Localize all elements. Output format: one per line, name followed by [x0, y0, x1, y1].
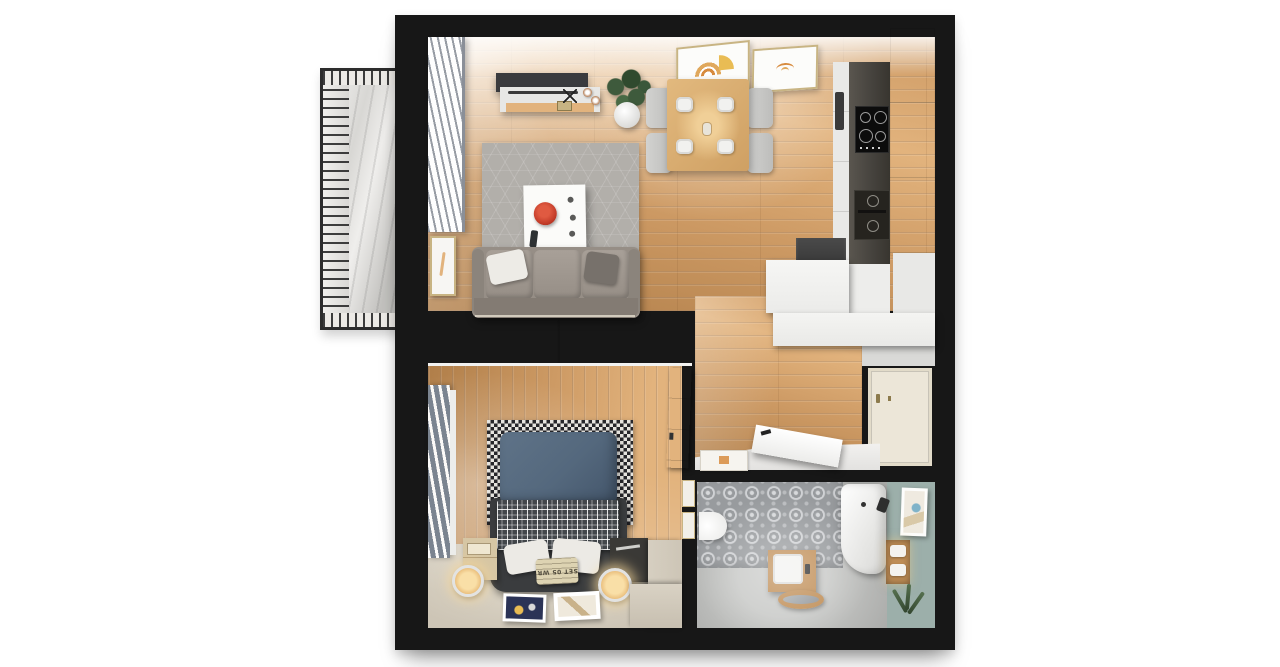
small-frame — [682, 480, 695, 507]
hall-cabinet-upper — [766, 260, 849, 313]
plate — [676, 97, 693, 112]
wash-basin — [773, 554, 803, 584]
toilet — [699, 512, 727, 540]
balcony-railing-left — [323, 71, 349, 327]
towel-roll — [890, 545, 906, 557]
bedroom-wardrobe — [428, 320, 692, 366]
tub-drain — [861, 502, 866, 507]
sofa — [472, 247, 640, 318]
kitchen-corner-cabinet — [893, 253, 935, 315]
sofa-cushion — [534, 250, 581, 299]
cushion-print-text: SET 05 WR — [536, 566, 577, 575]
floor-poster-beige — [553, 591, 600, 621]
hall-cabinet-lower — [773, 313, 935, 346]
bedroom-radiator — [450, 390, 456, 555]
eyeglasses — [616, 544, 640, 550]
bathroom-wall-picture — [900, 488, 928, 537]
poster-art — [506, 596, 544, 619]
towel-shelf — [886, 540, 910, 584]
picture-sketch — [439, 252, 445, 276]
door-handle — [669, 433, 673, 440]
balcony-concrete-floor — [345, 83, 395, 315]
book-stack — [468, 544, 490, 554]
poster-art — [558, 595, 597, 617]
red-fruit-bowl — [534, 202, 557, 225]
kitchen-tall-cabinets — [890, 28, 935, 256]
burner — [875, 131, 886, 142]
small-frame — [682, 512, 695, 539]
doormat-logo — [719, 456, 729, 464]
door-handle — [876, 394, 880, 403]
cup — [583, 88, 592, 97]
burner — [860, 112, 871, 123]
table-centerpiece — [703, 123, 711, 135]
hallway-wall-art — [682, 480, 696, 540]
fan-art-glyph — [776, 62, 794, 75]
induction-hob — [856, 107, 888, 152]
bedroom-platform-step — [630, 584, 682, 628]
plate — [717, 139, 734, 154]
oven-knob — [867, 220, 879, 232]
table-cup — [570, 215, 576, 221]
balcony — [320, 68, 400, 330]
balcony-railing-bottom — [323, 313, 397, 327]
quarter-circle-glyph — [719, 54, 734, 71]
door-lock — [888, 396, 891, 401]
vanity-cabinet — [768, 550, 816, 592]
plate — [676, 139, 693, 154]
living-room-wall-picture — [430, 236, 456, 296]
gray-throw-pillow — [583, 251, 620, 285]
plate — [717, 97, 734, 112]
burner — [874, 111, 887, 124]
floor-plan-canvas: SET 05 WR — [0, 0, 1280, 667]
apartment-plan: SET 05 WR — [395, 15, 955, 650]
remote-control — [529, 230, 538, 248]
arc-art-glyph — [694, 59, 722, 77]
hob-controls — [860, 147, 884, 149]
burner — [859, 129, 873, 143]
floor-lamp-left — [452, 565, 484, 597]
dining-chair — [747, 133, 773, 173]
arrow-decor — [563, 89, 577, 103]
dining-chair — [747, 88, 773, 128]
floor-lamp-right — [598, 568, 632, 602]
printed-cushion: SET 05 WR — [535, 557, 578, 585]
table-cup — [569, 231, 575, 237]
entry-niche-top — [862, 346, 935, 366]
built-in-ovens — [854, 190, 890, 240]
picture-art — [903, 491, 924, 534]
oven-divider — [858, 210, 886, 213]
oven-knob — [867, 195, 879, 207]
ceiling-light-frame-2 — [752, 45, 819, 94]
living-room-curtains — [428, 37, 465, 232]
bedroom-curtains — [428, 385, 450, 558]
table-cup — [568, 197, 574, 203]
kitchen-tray — [835, 92, 844, 130]
bathroom-plant — [890, 580, 928, 625]
basin-faucet — [805, 564, 810, 574]
potted-plant-pot — [614, 102, 640, 128]
wall-trim-line — [475, 315, 635, 317]
oval-mirror — [778, 590, 824, 609]
floor-poster-navy — [503, 593, 547, 622]
console-wood-front — [506, 103, 594, 112]
doormat — [700, 450, 748, 471]
bed-duvet — [500, 432, 617, 505]
balcony-railing-top — [323, 71, 397, 85]
door-hinge-mark — [761, 429, 772, 435]
cup — [591, 96, 600, 105]
dining-table — [667, 79, 749, 171]
towel-roll — [890, 564, 906, 576]
bedroom-door — [666, 368, 691, 469]
